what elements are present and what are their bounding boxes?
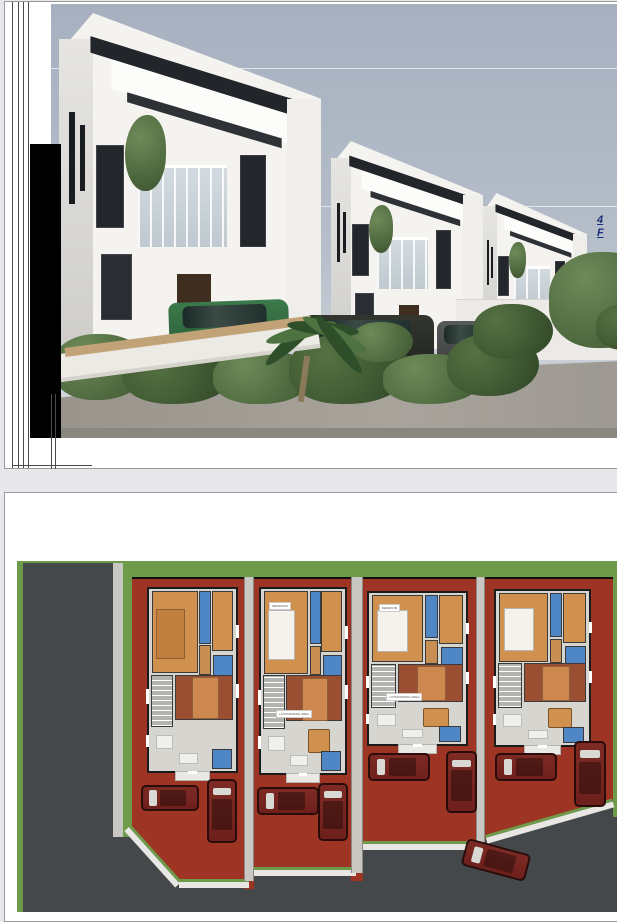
dining-table [548,708,572,728]
room-bathroom [439,726,461,743]
sheet-frame-line [12,465,92,466]
room-label: BEDROOM [269,602,291,610]
house-unit-1 [59,13,321,343]
room-hall [310,646,321,675]
walkway-divider [244,577,254,881]
sofa [179,753,198,764]
bed [504,608,534,650]
balcony-plant [509,242,526,278]
room-bathroom [550,593,562,638]
page-render-sheet: 4 F [4,1,617,469]
parked-car [495,753,557,781]
floorplan-unit: BEDROOM LIVING/DINING AREA [367,591,468,746]
annotation-line: F [597,227,617,240]
sheet-frame-line [51,394,52,469]
room-bedroom [439,595,463,645]
curb [254,867,356,876]
room-bedroom [524,663,586,702]
parked-car [257,787,319,815]
bed [192,677,219,719]
sheet-frame-line [23,2,24,468]
curb [363,841,481,850]
parked-car [368,753,430,781]
room-bathroom [310,591,321,644]
bed [268,610,296,660]
room-bedroom [175,675,233,721]
curb [179,879,249,888]
asphalt-strip [51,428,617,438]
landscape-strip [123,563,132,841]
sofa [528,730,548,739]
road-left [23,563,113,912]
annotation-line: 4 [597,214,617,227]
room-hall [550,639,562,664]
sofa [503,714,522,726]
parked-car [141,785,199,811]
sofa [156,735,173,750]
room-bedroom-master [499,593,548,662]
room-label: BEDROOM [379,604,401,612]
room-bathroom [425,595,438,639]
room-label: LIVING/DINING AREA [276,710,312,718]
sofa [290,755,308,766]
black-redaction-bar [30,144,61,438]
room-bedroom-master [152,591,198,673]
room-label: LIVING/DINING AREA [386,693,422,701]
page-floorplan-sheet: BEDROOM LIVING/DINING AREA BEDROOM LIVIN… [4,492,617,922]
document-viewer: { "document": { "kind": "architectural-p… [0,0,617,917]
staircase [151,675,174,728]
floorplan-unit [494,589,591,747]
floorplan-unit: BEDROOM LIVING/DINING AREA [259,587,347,775]
dining-table [308,729,330,753]
parked-car [318,783,348,841]
staircase [371,664,396,708]
room-bedroom [563,593,586,644]
sidewalk [113,563,123,851]
landscape-strip [613,577,617,817]
sheet-frame-line [12,2,13,468]
sheet-frame-line [55,394,56,469]
sheet-frame-line [18,2,19,468]
room-bathroom [199,591,210,644]
parked-car [574,741,606,807]
staircase [498,663,522,708]
room-bathroom [321,751,340,771]
sofa [268,736,285,751]
parked-car [207,779,237,843]
room-bathroom [212,749,232,769]
sheet-frame-line [28,2,29,468]
bed [156,609,184,659]
render-annotation-text: 4 F [597,214,617,240]
bed [542,666,571,702]
room-bedroom [212,591,234,651]
room-bedroom [321,591,342,652]
floorplan-unit [147,587,238,773]
room-hall [425,640,438,664]
parked-car [446,751,477,813]
road-corner [109,837,136,912]
walkway-divider [476,577,485,848]
bed [377,610,409,652]
sofa [377,714,396,726]
staircase [263,675,285,728]
exterior-render-image [51,4,617,438]
sofa [402,729,423,738]
balcony-plant [125,115,167,191]
dining-table [423,708,448,728]
balcony-plant [369,205,393,253]
room-hall [199,645,210,674]
walkway-divider [351,577,363,873]
